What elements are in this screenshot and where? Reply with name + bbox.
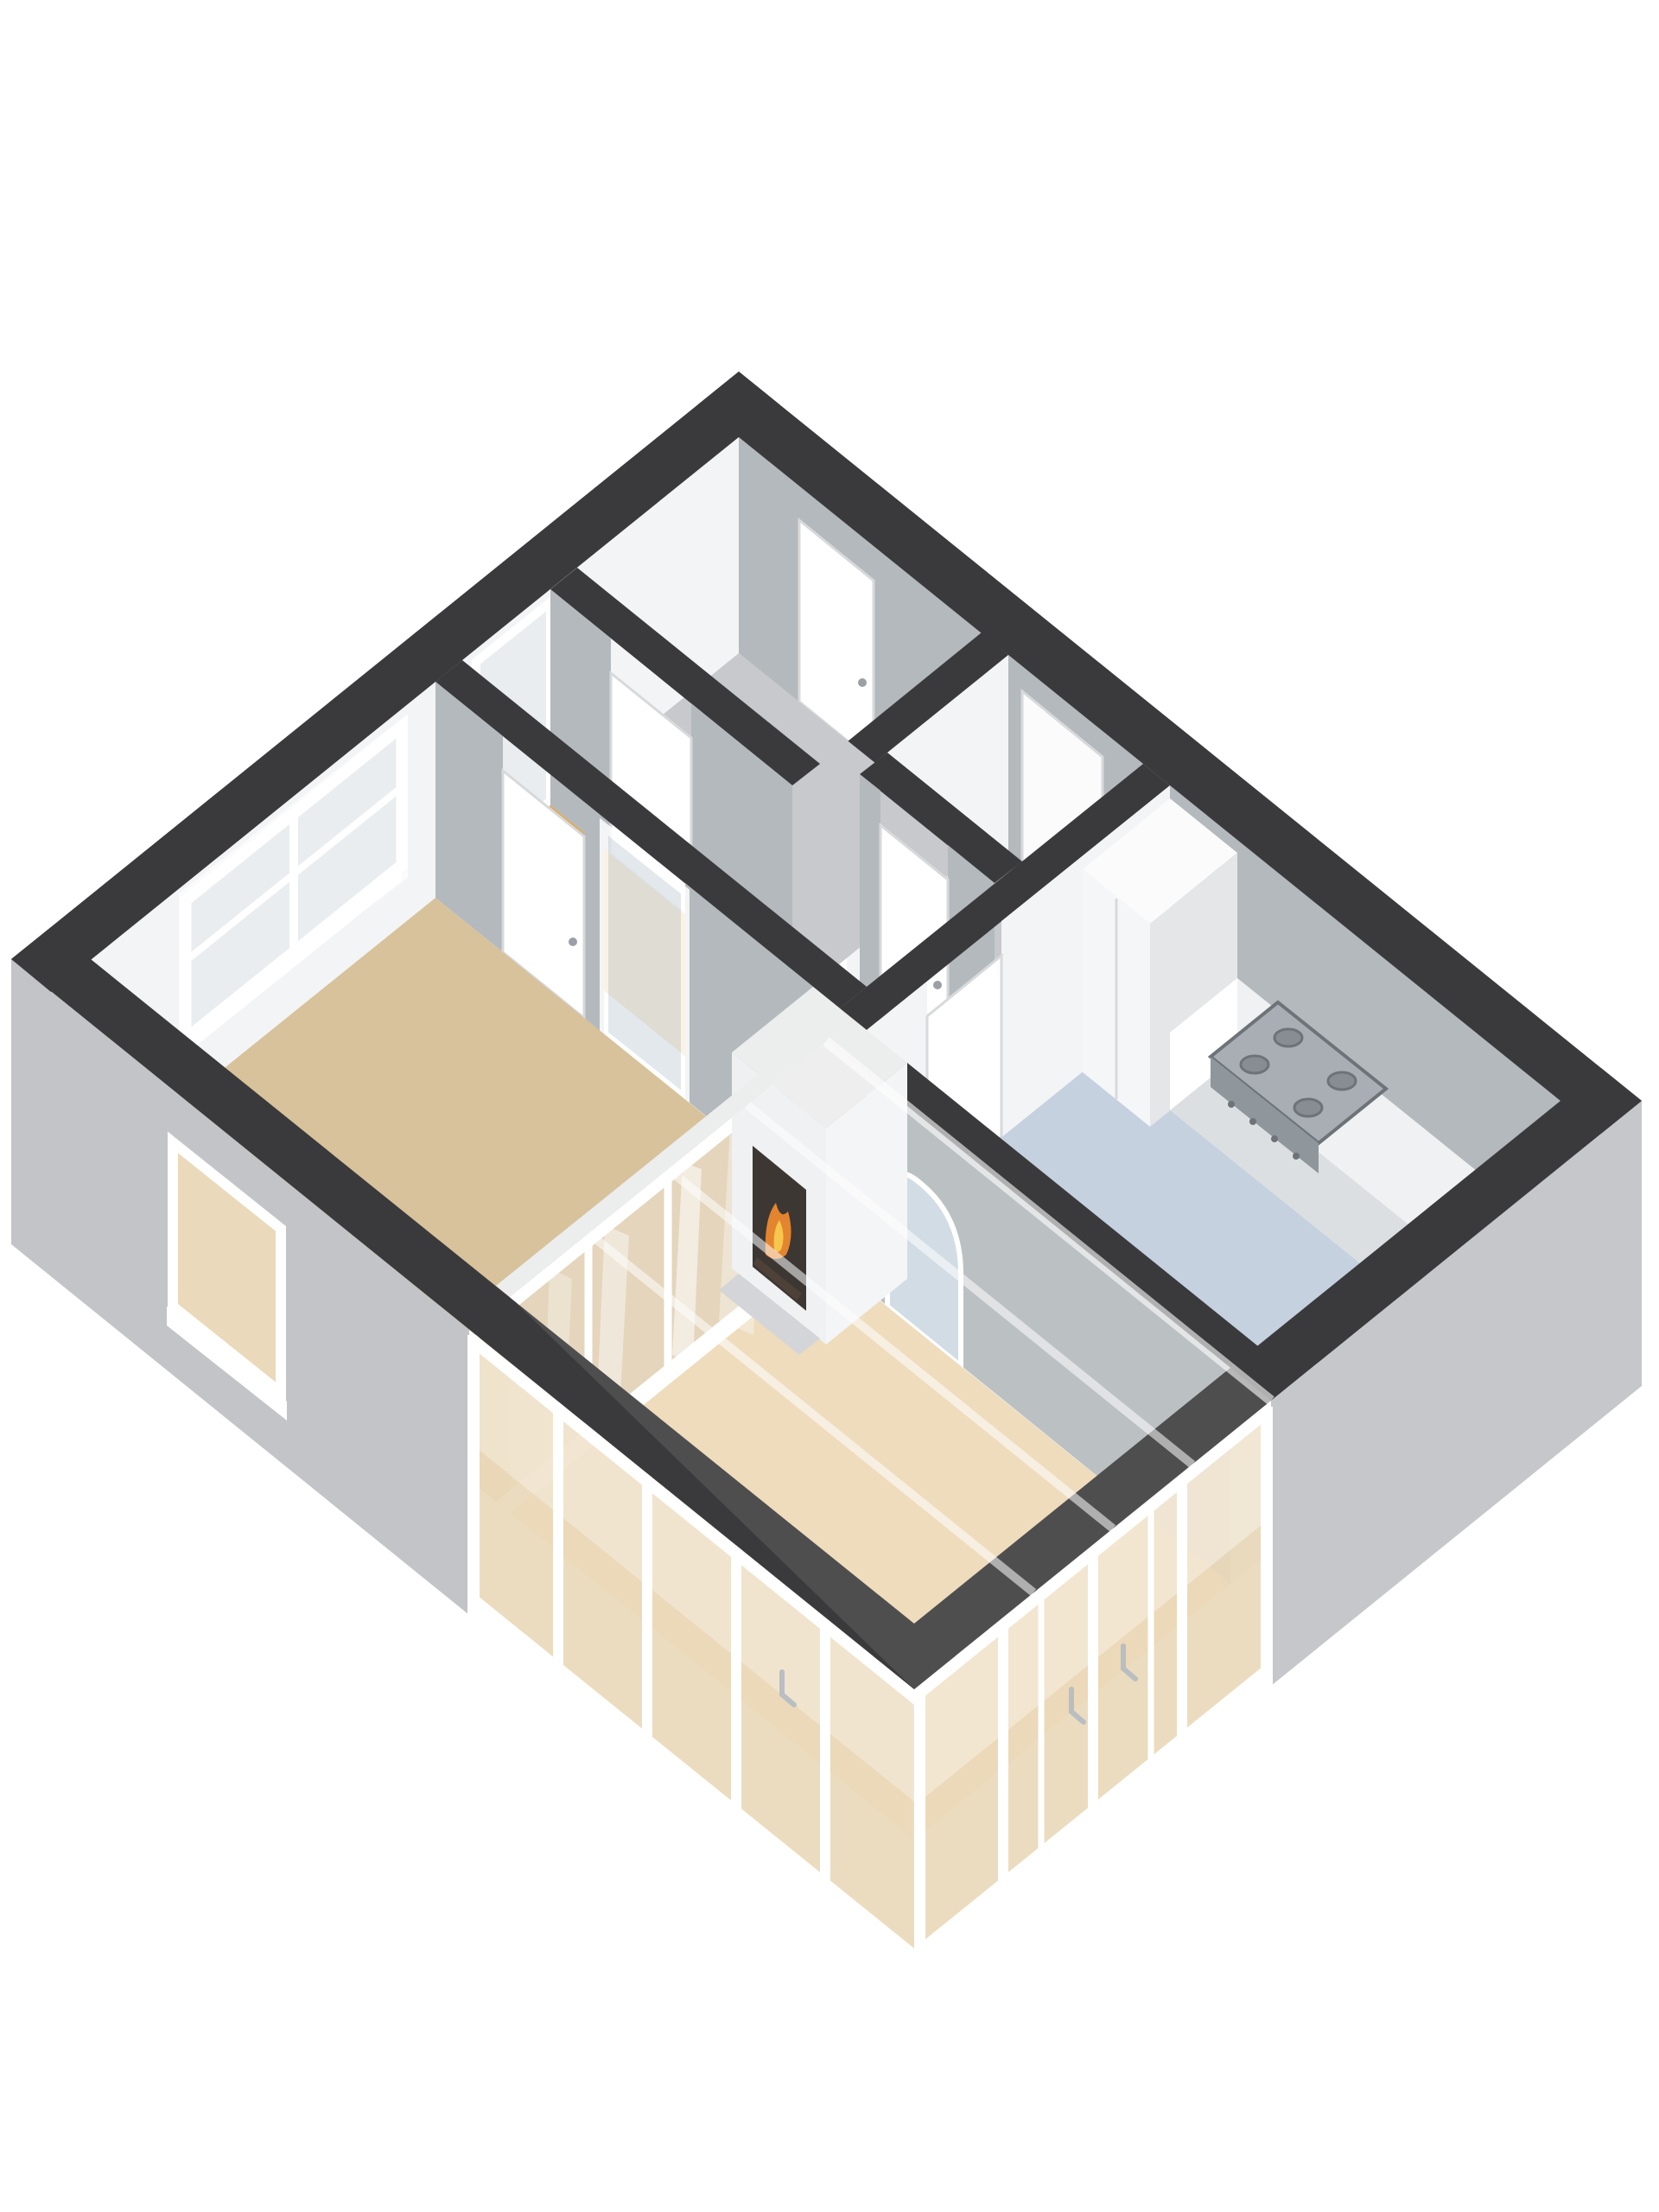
stove-burner-icon [1328,1072,1356,1090]
front-door-handle-icon [858,678,867,687]
floorplan-3d-render [0,0,1659,2212]
stove-burner-icon [1294,1099,1322,1116]
living-room-door-handle-icon [569,938,577,946]
stove-knob-icon [1293,1153,1300,1160]
stove-knob-icon [1271,1135,1278,1142]
stove-knob-icon [1228,1101,1235,1108]
floorplan-stage [0,0,1659,2212]
closet-door-handle-icon [933,981,942,989]
wall-face [860,774,880,1007]
stove-burner-icon [1241,1056,1268,1073]
stove-knob-icon [1249,1118,1256,1125]
stove-burner-icon [1274,1029,1302,1046]
